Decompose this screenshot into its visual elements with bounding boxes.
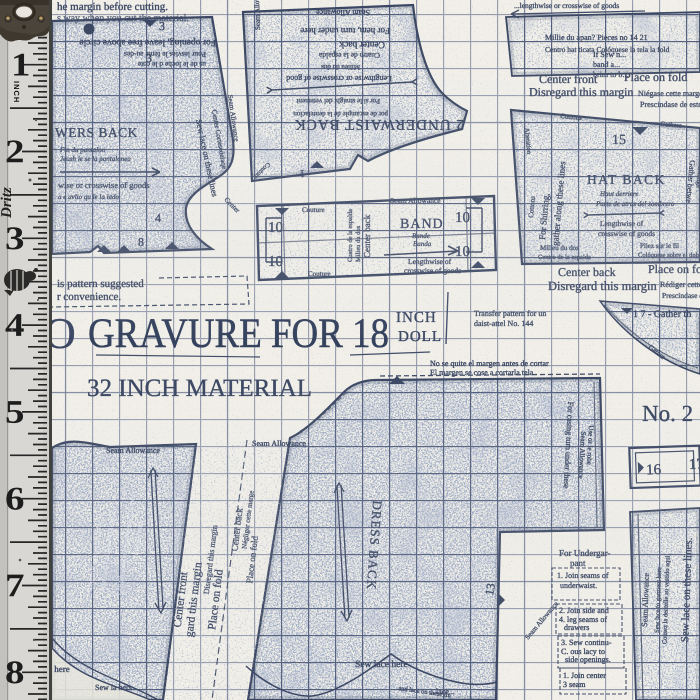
svg-text:3: 3 [5,221,25,257]
svg-text:1: 1 [11,48,31,84]
svg-text:8: 8 [5,655,25,691]
svg-text:Dritz: Dritz [0,187,15,219]
svg-text:INCH: INCH [12,81,21,103]
svg-text:2: 2 [5,134,25,170]
svg-text:6: 6 [5,482,25,518]
svg-text:5: 5 [5,395,25,431]
svg-text:4: 4 [5,308,25,344]
svg-text:7: 7 [5,568,25,604]
